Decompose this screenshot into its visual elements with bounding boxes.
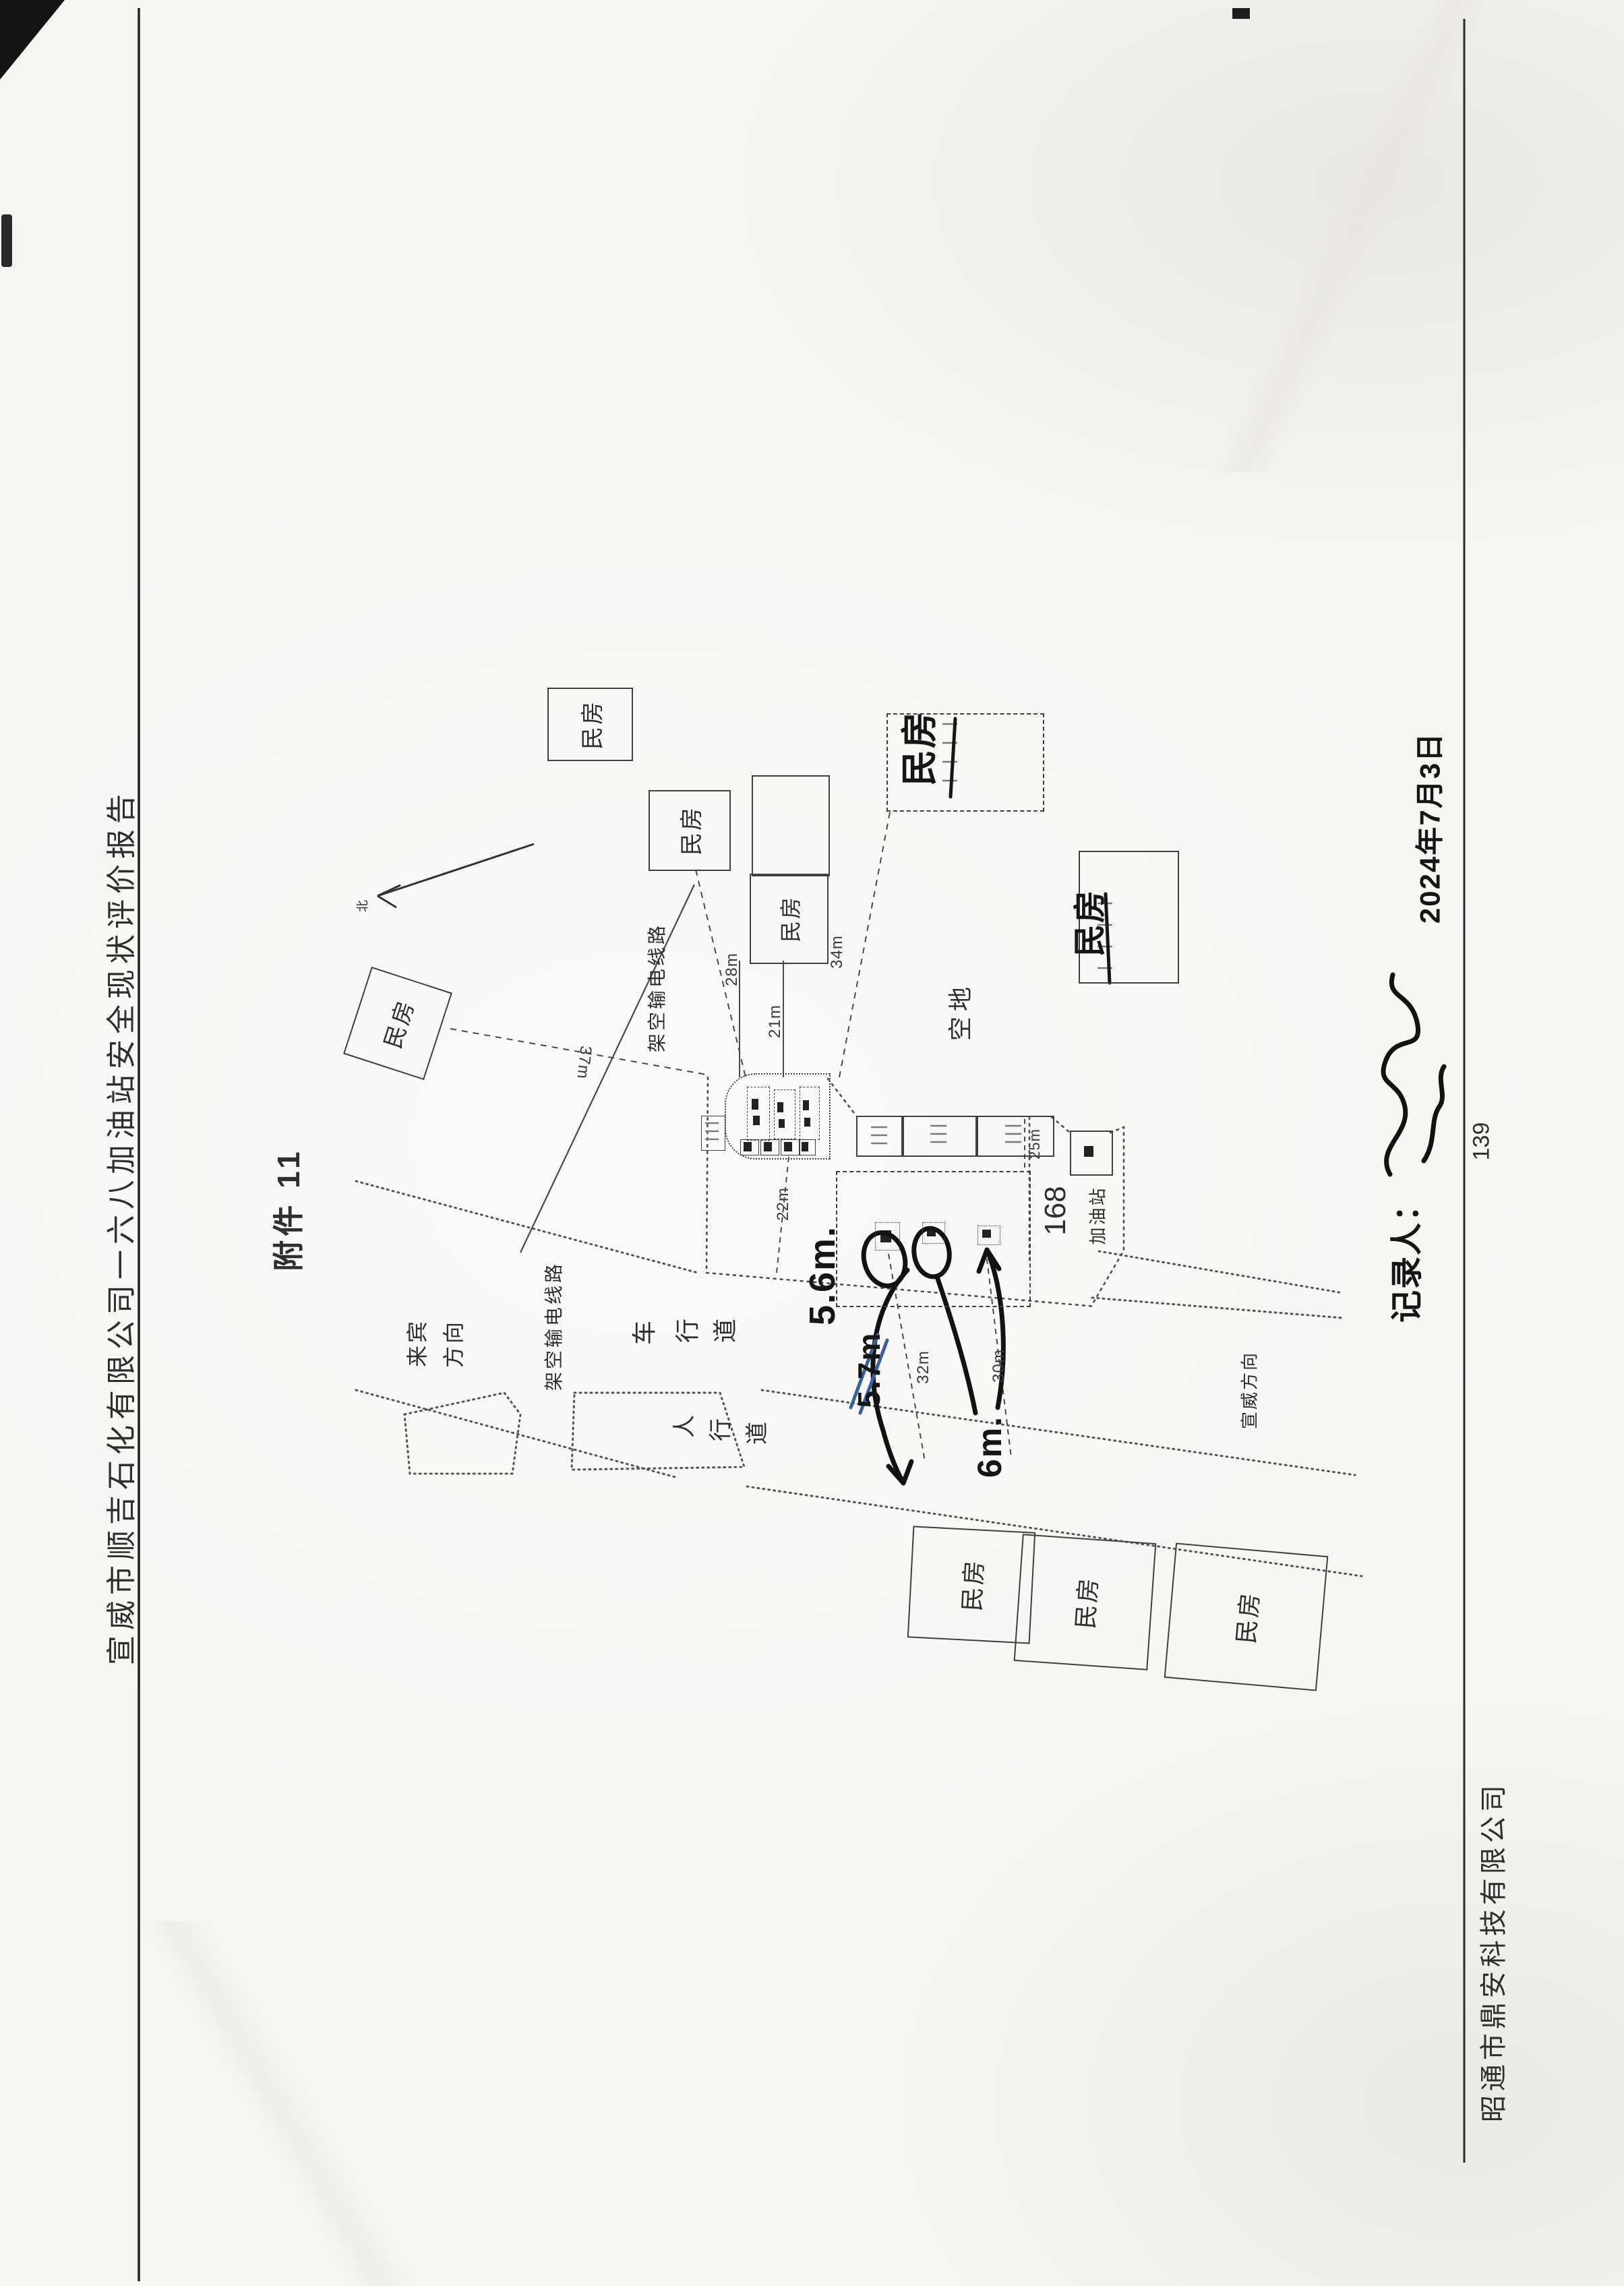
dimension-34m: 34m <box>828 935 847 969</box>
page-number: 139 <box>1469 1122 1495 1161</box>
flag-box <box>1070 1131 1113 1176</box>
handwritten-house-label: 民房 <box>890 711 943 786</box>
dimension-25m: 25m <box>1026 1129 1044 1160</box>
house-box-7: 民房 <box>1164 1542 1329 1691</box>
house-box-annotated-1: 民房 <box>886 713 1044 812</box>
pump-island-2 <box>774 1089 795 1139</box>
house-box-annotated-2: 民房 <box>1079 851 1179 984</box>
dispenser-box-2 <box>760 1139 779 1155</box>
house-box-3-upper <box>752 775 830 876</box>
station-name: 加油站 <box>1085 1186 1110 1244</box>
dispenser-box-4 <box>800 1139 816 1155</box>
house-label: 民房 <box>1066 1575 1104 1629</box>
sidewalk-label: 道 <box>739 1422 772 1445</box>
handwritten-date: 2024年7月3日 <box>1408 732 1449 924</box>
dimension-28m: 28m <box>723 953 742 986</box>
station-number: 168 <box>1039 1186 1073 1235</box>
dimension-22m: 22m <box>774 1187 793 1221</box>
house-box-3-lower: 民房 <box>750 874 829 964</box>
pump-island-3 <box>800 1087 820 1140</box>
station-room-2 <box>901 1116 978 1157</box>
report-header-title: 宣威市顺吉石化有限公司一六八加油站安全现状评价报告 <box>97 789 140 1665</box>
vehicle-lane-label: 道 <box>706 1319 741 1343</box>
recorder-label: 记录人： <box>1380 1188 1427 1323</box>
powerline-label: 架空输电线路 <box>539 1261 566 1391</box>
north-label: 北 <box>353 900 371 912</box>
gatehouse-box <box>701 1116 725 1151</box>
house-label: 民房 <box>774 895 805 942</box>
handwritten-house-label: 民房 <box>1063 889 1110 957</box>
direction-laibin: 方向 <box>437 1319 468 1368</box>
tank-manhole-3 <box>978 1226 1000 1245</box>
handwritten-distance-2-struck: 5.7m <box>851 1332 887 1408</box>
sidewalk-label: 行 <box>702 1418 735 1441</box>
dimension-21m: 21m <box>766 1004 785 1038</box>
house-label: 民房 <box>673 806 706 855</box>
dispenser-box-1 <box>740 1139 759 1155</box>
pump-island-1 <box>747 1087 770 1141</box>
footer-company: 昭通市鼎安科技有限公司 <box>1472 1781 1511 2122</box>
vehicle-lane-label: 行 <box>668 1319 703 1343</box>
direction-laibin: 来宾 <box>400 1319 431 1367</box>
direction-xuanwei: 宣威方向 <box>1236 1351 1261 1429</box>
handwritten-distance-3: 6m. <box>970 1416 1009 1478</box>
attachment-label: 附件 11 <box>264 1147 309 1271</box>
house-label: 民房 <box>953 1558 990 1613</box>
handwritten-distance-1: 5.6m. <box>802 1226 843 1325</box>
dimension-32m: 32m <box>914 1350 933 1384</box>
vehicle-lane-label: 车 <box>625 1321 660 1345</box>
house-box-6: 民房 <box>1014 1534 1157 1670</box>
house-label: 民房 <box>574 700 607 750</box>
tank-manhole-2 <box>922 1222 945 1244</box>
dimension-30m: 30m <box>990 1349 1009 1383</box>
sidewalk-label: 人 <box>666 1415 699 1438</box>
house-box-2: 民房 <box>649 790 731 871</box>
scanned-report-page: 宣威市顺吉石化有限公司一六八加油站安全现状评价报告 附件 11 139 昭通市鼎… <box>0 0 1624 2286</box>
tank-manhole-1 <box>875 1222 900 1251</box>
dispenser-box-3 <box>781 1139 800 1155</box>
house-box-1: 民房 <box>547 688 633 761</box>
dimension-37m: 37m <box>572 1045 595 1080</box>
powerline-label: 架空输电线路 <box>642 923 669 1052</box>
house-label: 民房 <box>374 994 421 1052</box>
vacant-land-label: 空地 <box>941 982 976 1041</box>
station-room-1 <box>856 1116 904 1157</box>
house-label: 民房 <box>1226 1589 1266 1644</box>
